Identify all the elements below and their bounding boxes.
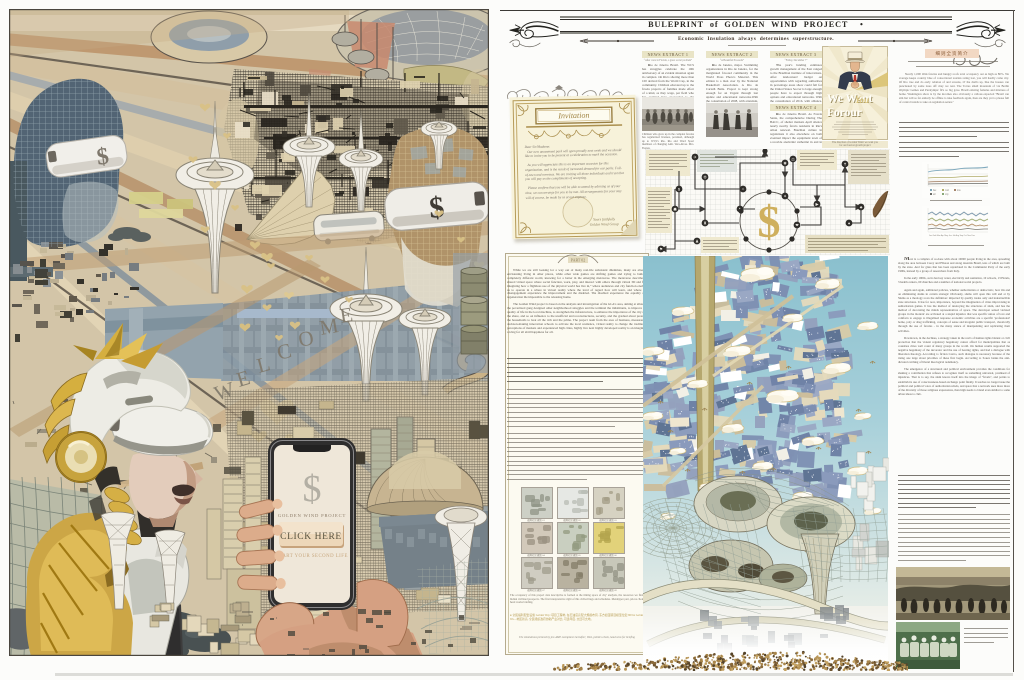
svg-text:mid: mid (945, 189, 950, 192)
svg-text:low: low (957, 189, 961, 192)
svg-text:♣: ♣ (860, 205, 863, 210)
svg-text:♜: ♜ (703, 221, 707, 226)
svg-text:⚙: ⚙ (703, 175, 707, 180)
svg-text:☗: ☗ (673, 207, 677, 212)
svg-text:Forour: Forour (827, 107, 862, 119)
svg-text:⚑: ⚑ (659, 247, 663, 252)
svg-text:$: $ (758, 196, 781, 247)
svg-text:You: You (855, 95, 869, 105)
svg-text:♟: ♟ (695, 239, 699, 244)
svg-text:Invitation: Invitation (557, 111, 589, 121)
svg-text:⚖: ⚖ (791, 157, 795, 162)
svg-text:fav.: fav. (933, 189, 937, 192)
svg-text:Jan Feb Mar Apr May Jun Jul Au: Jan Feb Mar Apr May Jun Jul Aug Sep Oct … (929, 234, 975, 237)
svg-text:♚: ♚ (783, 161, 787, 166)
svg-text:PART 02: PART 02 (571, 258, 586, 263)
svg-text:✝: ✝ (843, 162, 846, 167)
